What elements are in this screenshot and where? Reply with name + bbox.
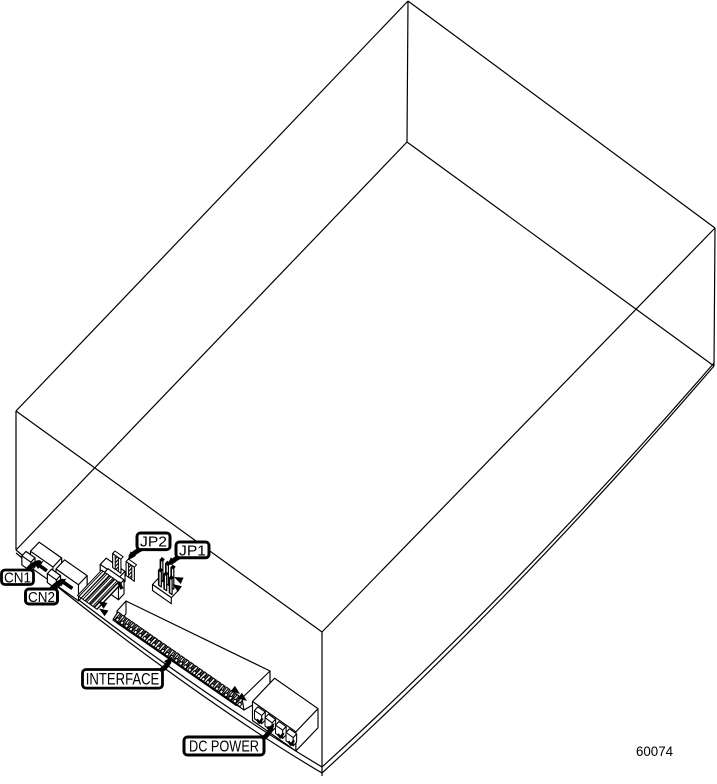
- svg-text:CN1: CN1: [4, 570, 31, 587]
- svg-text:60074: 60074: [636, 743, 673, 759]
- svg-text:JP1: JP1: [179, 542, 206, 559]
- svg-text:JP2: JP2: [140, 534, 167, 551]
- svg-text:INTERFACE: INTERFACE: [86, 671, 160, 689]
- svg-text:DC POWER: DC POWER: [189, 739, 259, 756]
- svg-text:CN2: CN2: [28, 589, 55, 606]
